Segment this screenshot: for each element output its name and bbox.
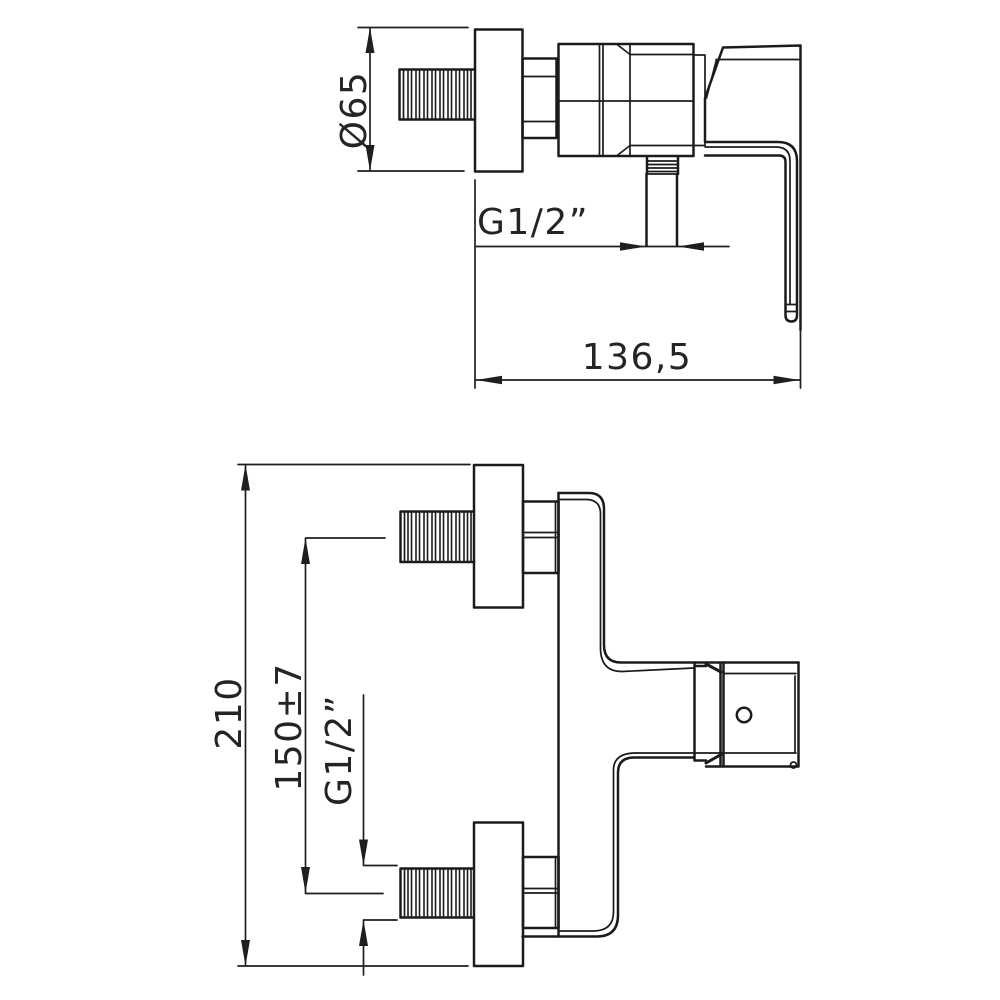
sv-body-details [559, 44, 706, 156]
arrowhead-up [359, 920, 368, 946]
sv-dim-overall-depth: 136,5 [475, 330, 801, 388]
fv-trunk-upper-inner [559, 500, 695, 672]
arrowhead-down [301, 867, 310, 893]
fv-inlet-union-bottom [401, 823, 559, 967]
sv-hex-nut [523, 59, 557, 139]
sv-hex-nut-flats [523, 77, 557, 122]
dim-label-inlet-spacing: 150±7 [269, 662, 310, 791]
arrowhead-up [366, 28, 375, 54]
arrowhead-down [359, 840, 368, 866]
dim-label-flange-diameter: Ø65 [334, 71, 375, 150]
fv-top-wall-flange [474, 465, 523, 608]
front-view: 210 150±7 G1/2” [209, 465, 799, 976]
fv-collar-outline [695, 663, 799, 767]
fv-bottom-hex-nut-flats [523, 857, 559, 928]
sv-union-thread-hatching [408, 70, 471, 119]
fv-handle-end-block [636, 663, 799, 769]
sv-valve-body [559, 44, 706, 156]
sv-handle-outline [705, 46, 801, 331]
sv-lever-handle [705, 46, 801, 331]
fv-trunk-lower-inner [559, 753, 637, 931]
technical-drawing-svg: Ø65 G1/2” 136,5 [0, 0, 1000, 1000]
fv-trunk-upper-outline [559, 493, 799, 663]
fv-top-hex-nut-flats [523, 502, 559, 574]
arrowhead-up [301, 538, 310, 564]
drawing-canvas: Ø65 G1/2” 136,5 [0, 0, 1000, 1000]
dim-label-overall-depth: 136,5 [582, 337, 693, 378]
fv-dim-inlet-thread: G1/2” [319, 694, 397, 975]
arrowhead-up [241, 465, 250, 491]
fv-bottom-wall-flange [474, 823, 523, 967]
sv-body-outline [559, 44, 694, 156]
sv-outlet [647, 158, 679, 247]
fv-handle-screw-hole [737, 708, 751, 722]
fv-block-inner-lines [636, 674, 796, 754]
fv-body-trunk [523, 493, 799, 937]
fv-collar-chamfer-marks [706, 664, 721, 763]
arrowhead-right [774, 376, 800, 385]
fv-trunk-lower-outline [523, 758, 695, 937]
arrowhead-down [241, 940, 250, 966]
sv-inlet-union [400, 30, 557, 172]
sv-outlet-thread-hatching [647, 161, 678, 174]
fv-inlet-union-top [401, 465, 559, 608]
arrowhead-left [678, 242, 704, 251]
arrowhead-right [620, 242, 646, 251]
dim-label-inlet-thread: G1/2” [319, 694, 360, 806]
sv-wall-flange [475, 30, 523, 172]
side-view: Ø65 G1/2” 136,5 [334, 28, 801, 389]
fv-bottom-thread-hatching [408, 870, 471, 918]
dim-lines [364, 695, 398, 975]
dim-label-overall-length: 210 [209, 676, 250, 749]
arrowhead-left [476, 376, 502, 385]
dim-label-outlet-thread: G1/2” [477, 202, 589, 243]
fv-top-thread-hatching [408, 513, 471, 562]
